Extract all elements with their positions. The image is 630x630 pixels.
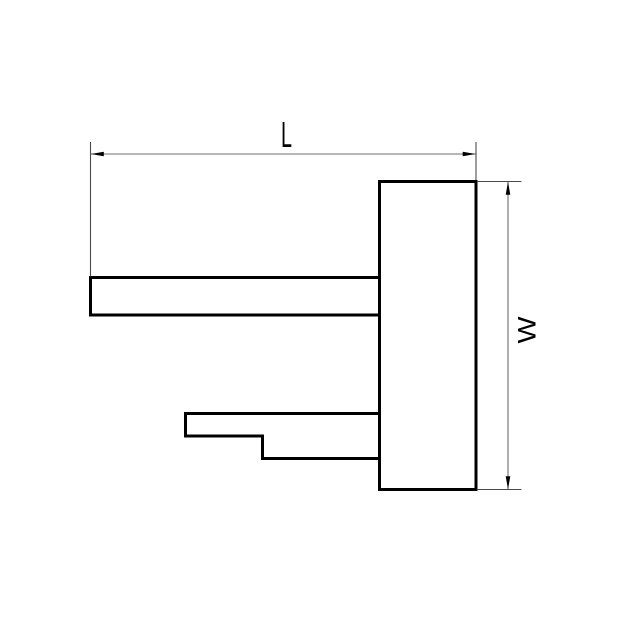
arrow-up-icon <box>506 182 511 195</box>
stepped-tab-profile <box>186 414 382 459</box>
drawing-canvas: L W <box>0 0 630 630</box>
flange-body-rect <box>380 182 477 490</box>
arrow-right-icon <box>463 152 476 157</box>
arrow-left-icon <box>91 152 104 157</box>
part-outline <box>91 182 477 490</box>
width-dimension: W <box>477 182 542 490</box>
width-dimension-label: W <box>514 316 542 343</box>
upper-bar-profile <box>91 278 381 316</box>
technical-drawing: L W <box>0 0 630 630</box>
length-dimension-label: L <box>281 114 292 155</box>
arrow-down-icon <box>506 476 511 489</box>
